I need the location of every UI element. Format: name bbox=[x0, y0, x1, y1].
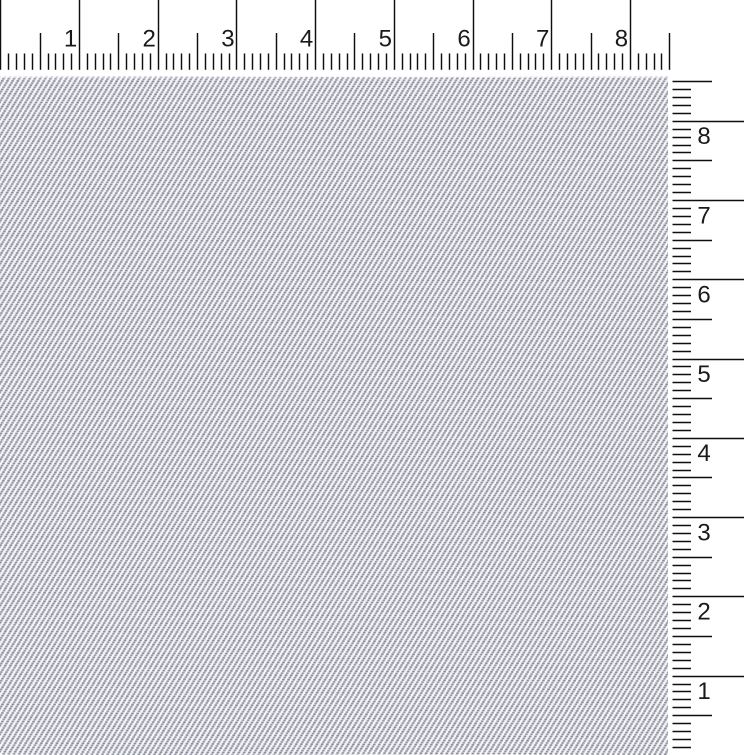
svg-text:8: 8 bbox=[697, 123, 710, 150]
svg-text:8: 8 bbox=[615, 25, 628, 52]
svg-text:5: 5 bbox=[697, 361, 710, 388]
svg-text:2: 2 bbox=[143, 25, 156, 52]
svg-text:2: 2 bbox=[697, 599, 710, 626]
svg-text:5: 5 bbox=[379, 25, 392, 52]
svg-text:6: 6 bbox=[697, 282, 710, 309]
svg-text:3: 3 bbox=[221, 25, 234, 52]
svg-text:4: 4 bbox=[697, 440, 710, 467]
svg-text:7: 7 bbox=[536, 25, 549, 52]
svg-text:7: 7 bbox=[697, 202, 710, 229]
svg-text:1: 1 bbox=[64, 25, 77, 52]
svg-text:3: 3 bbox=[697, 519, 710, 546]
svg-text:6: 6 bbox=[457, 25, 470, 52]
svg-text:4: 4 bbox=[300, 25, 313, 52]
svg-text:1: 1 bbox=[697, 678, 710, 705]
